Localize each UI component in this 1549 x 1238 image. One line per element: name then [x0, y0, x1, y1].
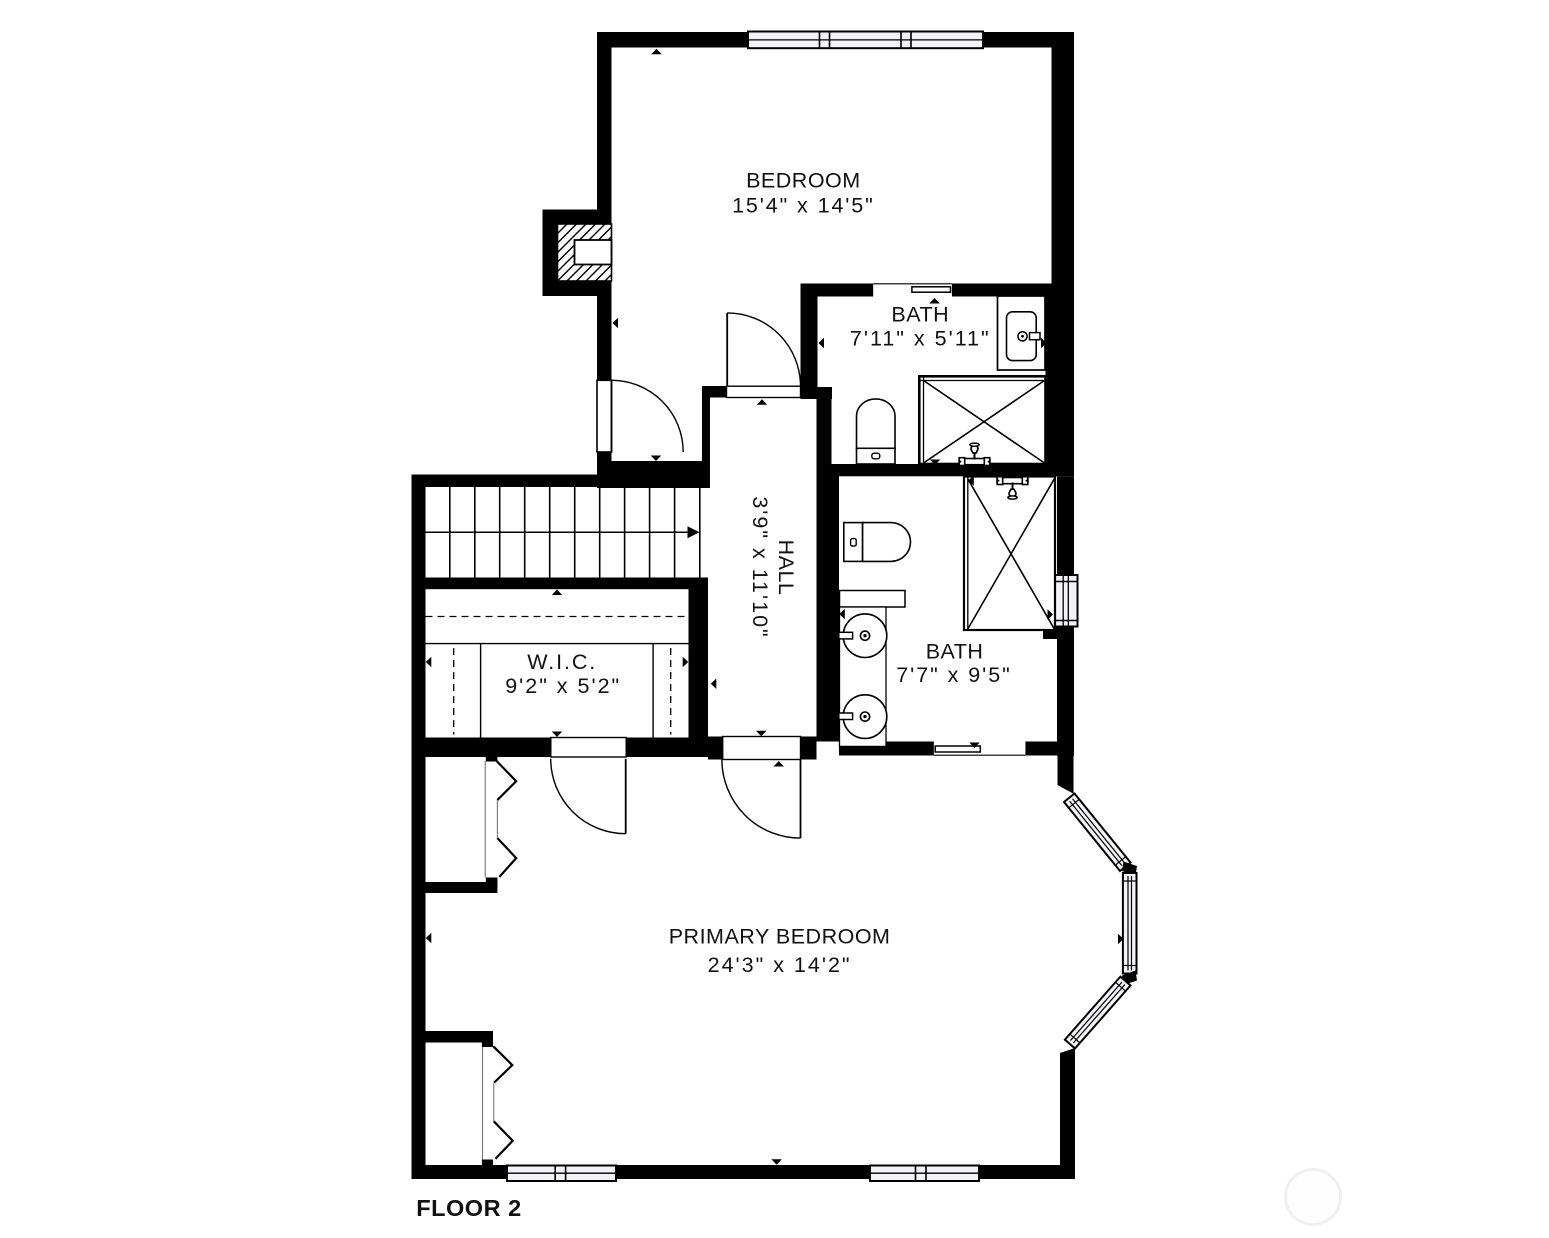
svg-text:BEDROOM: BEDROOM: [746, 169, 861, 193]
svg-text:PRIMARY BEDROOM: PRIMARY BEDROOM: [669, 925, 891, 949]
svg-text:7'7" x 9'5": 7'7" x 9'5": [896, 663, 1011, 687]
svg-text:BATH: BATH: [891, 303, 949, 327]
svg-text:W.I.C.: W.I.C.: [527, 650, 597, 674]
svg-text:15'4" x 14'5": 15'4" x 14'5": [732, 194, 875, 218]
svg-text:FLOOR 2: FLOOR 2: [416, 1195, 521, 1221]
svg-text:9'2" x 5'2": 9'2" x 5'2": [505, 674, 621, 698]
svg-text:HALL: HALL: [774, 540, 798, 596]
svg-text:24'3" x 14'2": 24'3" x 14'2": [708, 953, 852, 977]
svg-text:7'11" x 5'11": 7'11" x 5'11": [850, 327, 991, 351]
svg-text:BATH: BATH: [926, 640, 984, 664]
svg-text:3'9" x 11'10": 3'9" x 11'10": [748, 496, 772, 638]
